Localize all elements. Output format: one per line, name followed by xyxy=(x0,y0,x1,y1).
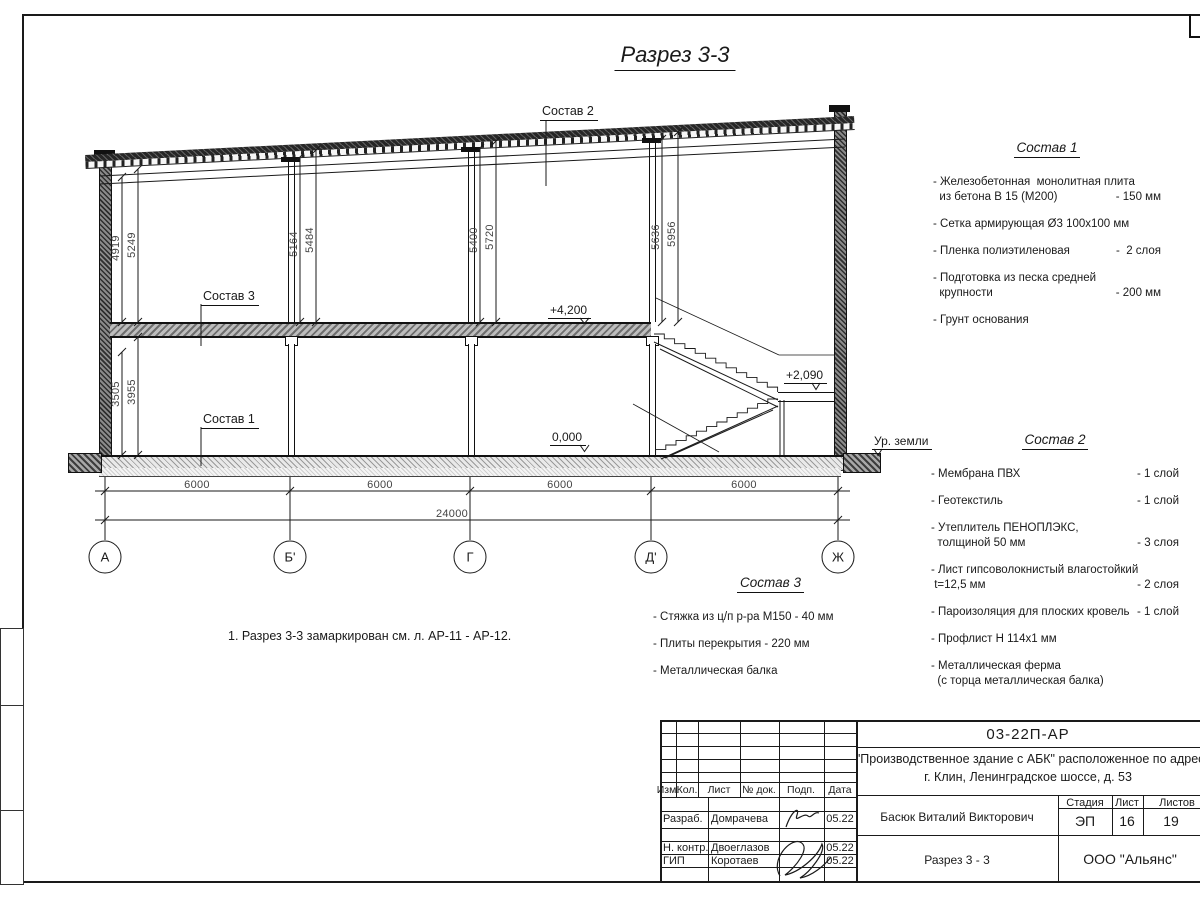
spec-item: - Мембрана ПВХ- 1 слой xyxy=(931,467,1179,482)
spec-item: - Профлист Н 114x1 мм xyxy=(931,632,1179,647)
vdim-5636: 5636 xyxy=(650,224,662,250)
tb-doc-number: 03-22П-АР xyxy=(986,726,1069,743)
axis-bubble-a: А xyxy=(101,550,110,565)
level-landing: +2,090 xyxy=(784,368,827,384)
drawing-sheet: Разрез 3-3 xyxy=(0,0,1200,900)
vdim-5720: 5720 xyxy=(484,224,496,250)
spec-item: - Пароизоляция для плоских кровель- 1 сл… xyxy=(931,605,1179,620)
tb-chief: Басюк Виталий Викторович xyxy=(880,810,1033,824)
callout-roof: Состав 2 xyxy=(540,104,598,121)
tb-role-razrab: Разраб. xyxy=(663,813,703,825)
spec-item: - Геотекстиль- 1 слой xyxy=(931,494,1179,509)
spec3-items: - Стяжка из ц/п р-ра М150 - 40 мм- Плиты… xyxy=(653,610,888,679)
tb-sheets-label: Листов xyxy=(1159,797,1195,809)
hdim-total: 24000 xyxy=(436,508,468,520)
spec2-title: Состав 2 xyxy=(931,432,1179,447)
axis-bubble-g: Г xyxy=(466,550,473,565)
vdim-5484: 5484 xyxy=(304,227,316,253)
tb-project-line1: "Производственное здание с АБК" располож… xyxy=(856,752,1200,766)
tb-role-gip: ГИП xyxy=(663,855,685,867)
spec-item: - Железобетонная монолитная плита из бет… xyxy=(933,175,1161,205)
hdim-3: 6000 xyxy=(547,479,573,491)
spec-item: - Стяжка из ц/п р-ра М150 - 40 мм xyxy=(653,610,888,625)
tb-sheet-label: Лист xyxy=(1115,797,1139,809)
tb-date-1: 05.22 xyxy=(826,813,854,825)
tb-col-data: Дата xyxy=(828,784,851,796)
spec-item: - Утеплитель ПЕНОПЛЭКС, толщиной 50 мм- … xyxy=(931,521,1179,551)
tb-date-2: 05.22 xyxy=(826,842,854,854)
axis-bubble-b: Б' xyxy=(284,550,295,565)
vdim-5400: 5400 xyxy=(468,227,480,253)
spec3-title: Состав 3 xyxy=(653,575,888,590)
hdim-4: 6000 xyxy=(731,479,757,491)
vdim-3505: 3505 xyxy=(110,381,122,407)
signature-2 xyxy=(777,842,831,878)
spec-item: - Лист гипсоволокнистый влагостойкий t=1… xyxy=(931,563,1179,593)
level-ground: 0,000 xyxy=(550,430,586,446)
tb-sheets-value: 19 xyxy=(1163,813,1179,829)
tb-col-podp: Подп. xyxy=(787,784,815,796)
signature-1 xyxy=(786,810,819,827)
spec-block-1: Состав 1 - Железобетонная монолитная пли… xyxy=(933,140,1161,340)
axis-bubble-d: Д' xyxy=(645,550,656,565)
tb-company: ООО "Альянс" xyxy=(1083,851,1177,867)
level-mid: +4,200 xyxy=(548,303,591,319)
tb-name-korotaev: Коротаев xyxy=(711,855,759,867)
vdim-4919: 4919 xyxy=(110,235,122,261)
spec-item: - Металлическая балка xyxy=(653,664,888,679)
spec-item: - Пленка полиэтиленовая- 2 слоя xyxy=(933,244,1161,259)
hdim-2: 6000 xyxy=(367,479,393,491)
vdim-5164: 5164 xyxy=(288,231,300,257)
spec-block-2: Состав 2 - Мембрана ПВХ- 1 слой- Геотекс… xyxy=(931,432,1179,701)
tb-col-kol: Кол. xyxy=(677,784,698,796)
vdim-5956: 5956 xyxy=(666,221,678,247)
spec1-title: Состав 1 xyxy=(933,140,1161,155)
spec1-items: - Железобетонная монолитная плита из бет… xyxy=(933,175,1161,328)
callout-mid: Состав 3 xyxy=(201,289,259,306)
spec-block-3: Состав 3 - Стяжка из ц/п р-ра М150 - 40 … xyxy=(653,575,888,691)
tb-stage-value: ЭП xyxy=(1075,813,1095,829)
axis-bubble-zh: Ж xyxy=(832,550,844,565)
tb-role-nkontr: Н. контр. xyxy=(663,842,708,854)
tb-col-ndok: № док. xyxy=(742,784,776,796)
spec-item: - Металлическая ферма (с торца металличе… xyxy=(931,659,1179,689)
spec-item: - Плиты перекрытия - 220 мм xyxy=(653,637,888,652)
vdim-3955: 3955 xyxy=(126,379,138,405)
drawing-note: 1. Разрез 3-3 замаркирован см. л. АР-11 … xyxy=(228,629,511,643)
tb-name-dvoeglazov: Двоеглазов xyxy=(711,842,769,854)
spec2-items: - Мембрана ПВХ- 1 слой- Геотекстиль- 1 с… xyxy=(931,467,1179,689)
hdim-1: 6000 xyxy=(184,479,210,491)
tb-sheet-title: Разрез 3 - 3 xyxy=(924,853,990,867)
spec-item: - Подготовка из песка средней крупности-… xyxy=(933,271,1161,301)
tb-project-line2: г. Клин, Ленинградское шоссе, д. 53 xyxy=(924,770,1132,784)
spec-item: - Сетка армирующая Ø3 100x100 мм xyxy=(933,217,1161,232)
callout-floor: Состав 1 xyxy=(201,412,259,429)
tb-date-3: 05.22 xyxy=(826,855,854,867)
tb-name-domracheva: Домрачева xyxy=(711,813,768,825)
spec-item: - Грунт основания xyxy=(933,313,1161,328)
vdim-5249: 5249 xyxy=(126,232,138,258)
level-terrain: Ур. земли xyxy=(872,434,932,450)
tb-sheet-value: 16 xyxy=(1119,813,1135,829)
tb-col-list: Лист xyxy=(708,784,731,796)
tb-stage-label: Стадия xyxy=(1066,797,1104,809)
